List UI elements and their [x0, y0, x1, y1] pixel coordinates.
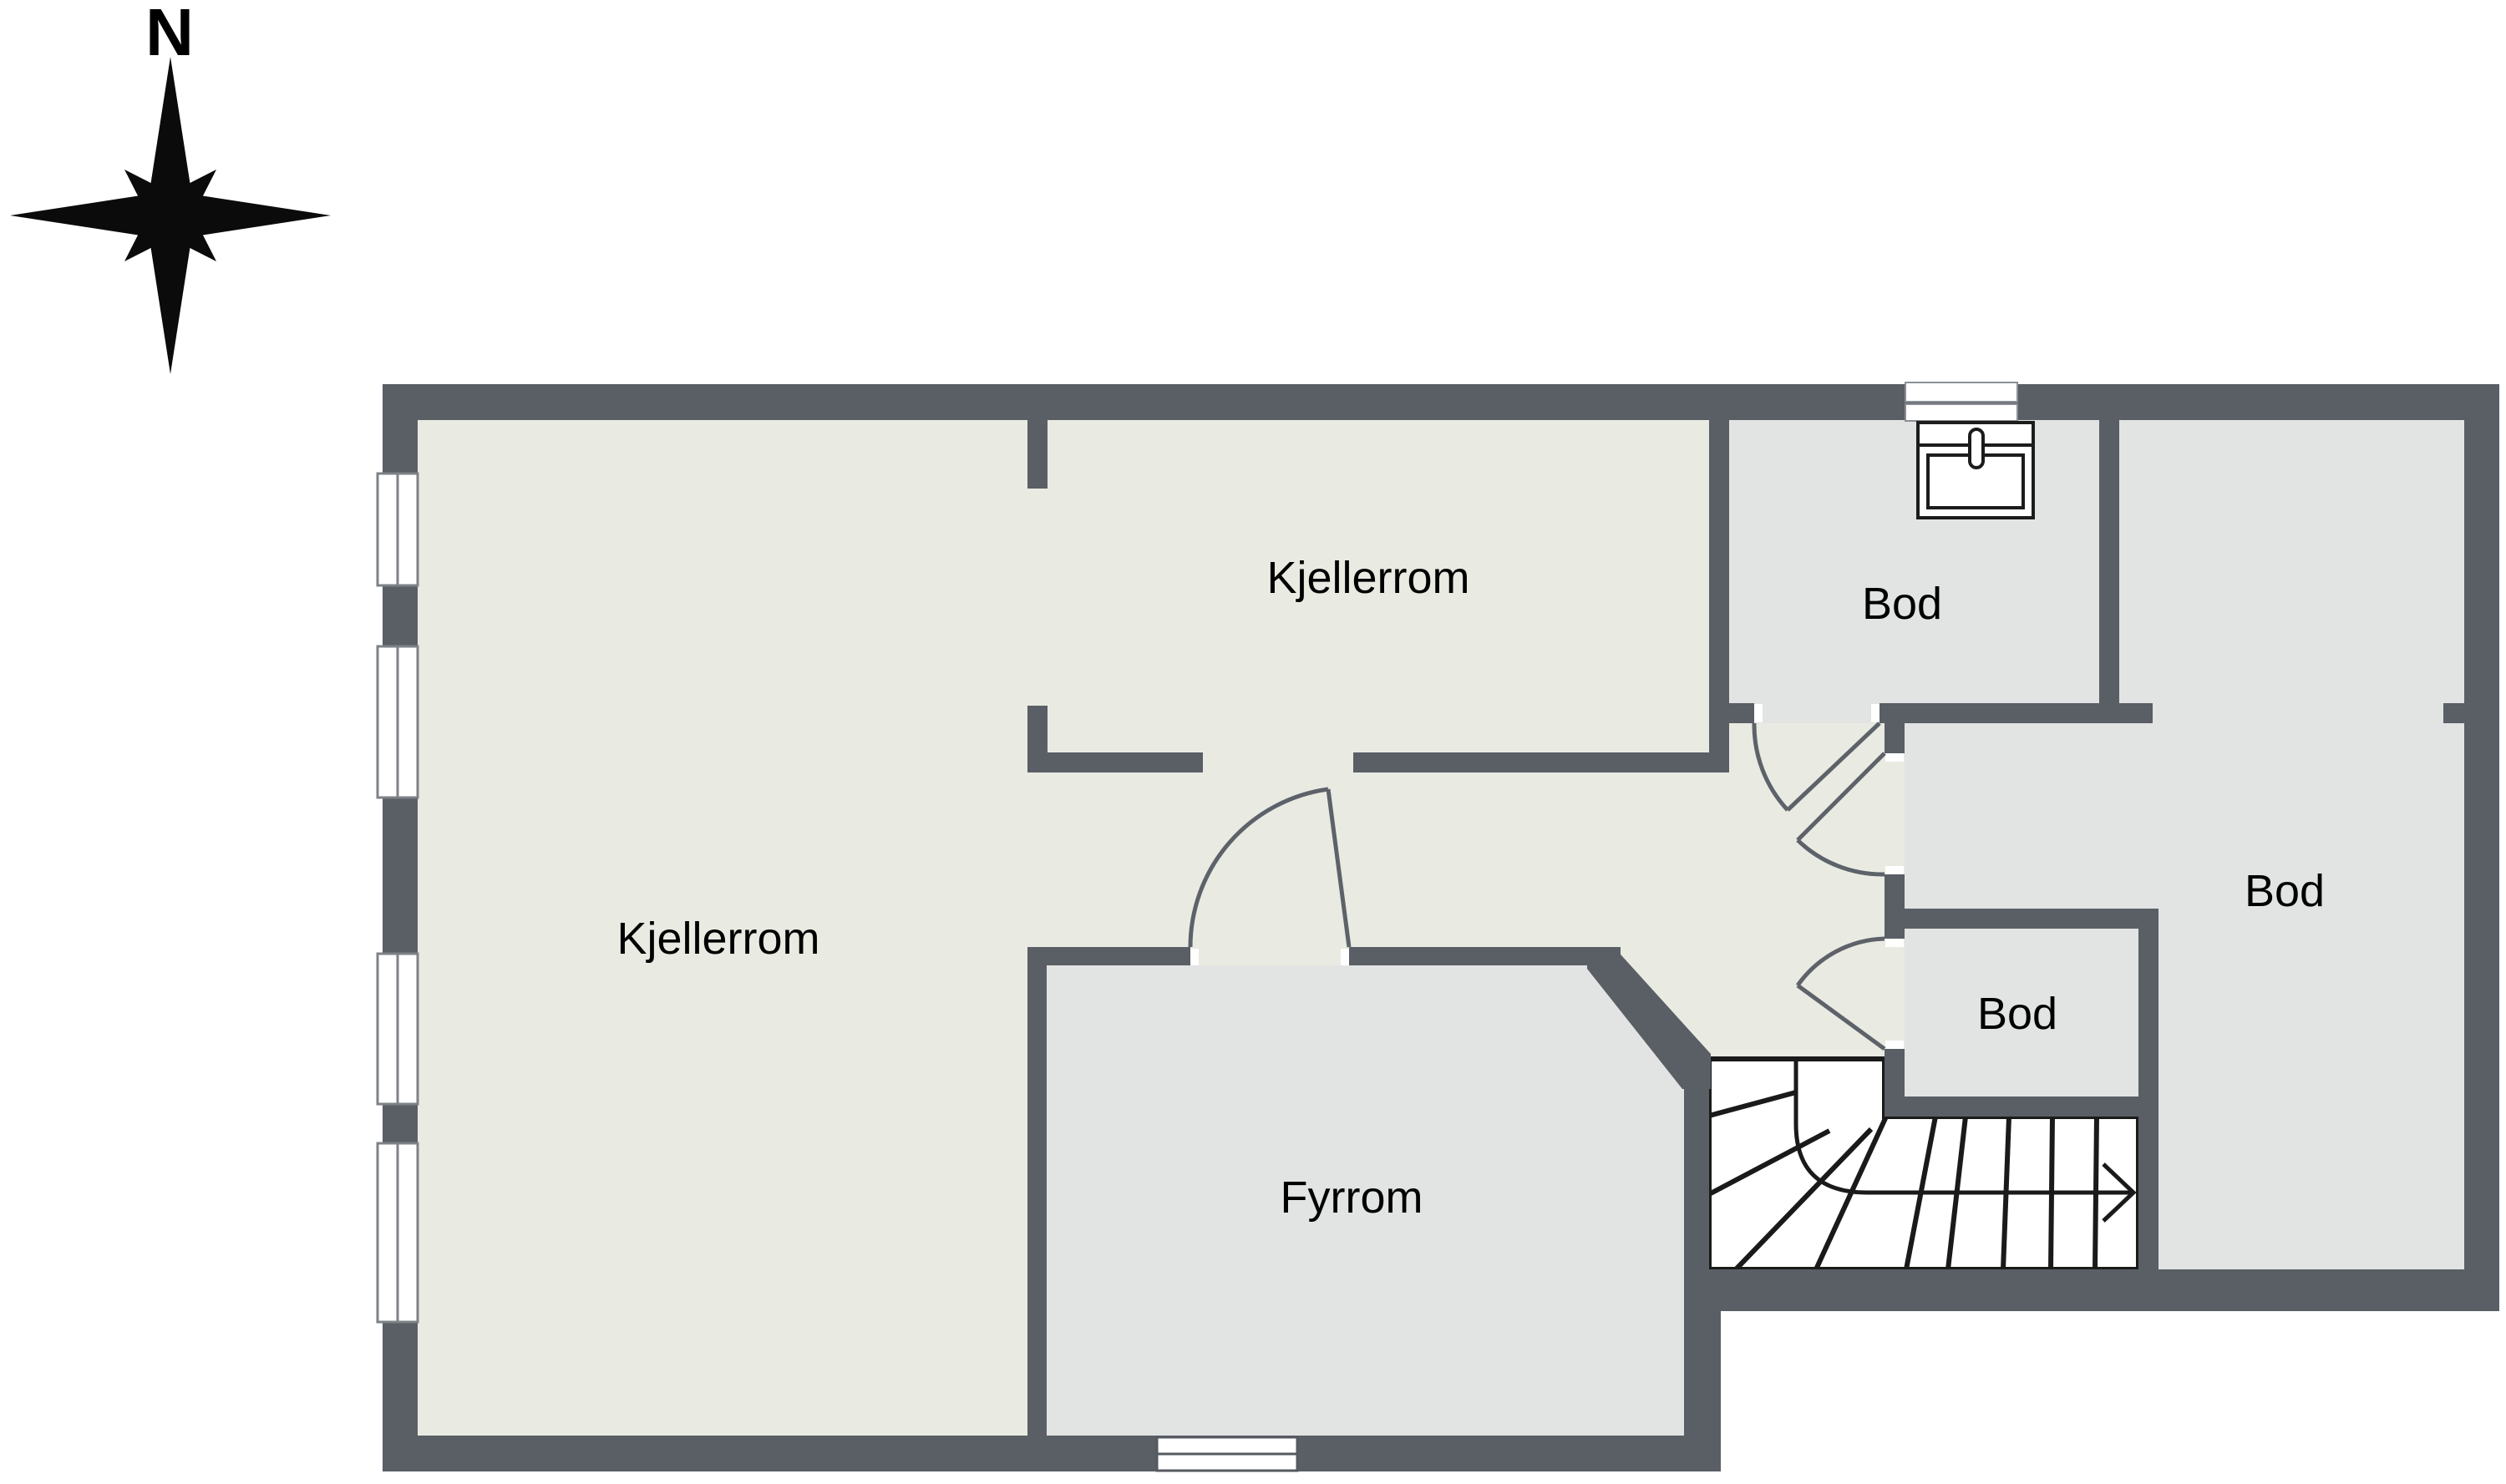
room-bod-right-floor: [2119, 420, 2464, 1269]
window-left-4: [378, 1143, 418, 1322]
wall-outer-step-band: [1686, 1269, 2499, 1311]
wall-outer-top: [383, 384, 2499, 420]
room-label-kjellerrom-left: Kjellerrom: [616, 914, 819, 964]
jamb: [1885, 939, 1904, 947]
window-left-3: [378, 954, 418, 1104]
wall-bod-top-left: [1709, 420, 1729, 772]
wall-hall-column-b: [1885, 874, 1905, 939]
jamb: [1871, 704, 1879, 722]
wall-fyrrom-top-left: [1047, 947, 1190, 965]
wall-bod-small-right: [2138, 909, 2159, 1117]
wall-fyrrom-left: [1027, 947, 1047, 1436]
jamb: [1190, 949, 1199, 965]
window-left-2: [378, 646, 418, 798]
sink-icon: [1918, 423, 2033, 518]
jamb: [1885, 866, 1904, 874]
wall-right-stub: [2443, 703, 2464, 723]
jamb: [1885, 753, 1904, 762]
room-label-kjellerrom-top: Kjellerrom: [1266, 553, 1469, 603]
north-label: N: [145, 0, 194, 69]
window-left-1: [378, 474, 418, 585]
window-bottom: [1157, 1437, 1297, 1471]
wall-hall-column-c: [1885, 1049, 1905, 1117]
room-label-bod-right: Bod: [2245, 866, 2325, 916]
jamb: [1341, 949, 1349, 965]
wall-stairs-right: [2138, 1117, 2159, 1269]
floorplan-canvas: N: [0, 0, 2506, 1484]
room-label-fyrrom: Fyrrom: [1281, 1173, 1423, 1223]
wall-outer-bottom: [383, 1436, 1721, 1471]
wall-outer-right: [2464, 384, 2499, 1311]
wall-bod-divider: [2099, 420, 2119, 723]
wall-fyrrom-right: [1684, 1054, 1709, 1436]
wall-hall-column-a: [1885, 717, 1905, 753]
floorplan-page: N: [0, 0, 2506, 1484]
chimney-icon: [1905, 382, 2017, 421]
wall-divider-stub: [1027, 420, 1048, 489]
wall-hall-north-right: [1353, 752, 1729, 772]
wall-bod-small-bottom: [1905, 1097, 2159, 1117]
jamb: [1885, 1041, 1904, 1049]
room-label-bod-top: Bod: [1862, 579, 1942, 629]
jamb: [1754, 704, 1763, 722]
wall-bod-top-bottom-a: [1729, 703, 1754, 723]
wall-hall-north-left: [1027, 752, 1203, 772]
wall-fyrrom-top-right: [1349, 947, 1621, 965]
room-label-bod-small: Bod: [1977, 989, 2057, 1039]
room-bod-top-floor: [1729, 420, 2099, 723]
wall-bod-small-top: [1885, 909, 2159, 929]
